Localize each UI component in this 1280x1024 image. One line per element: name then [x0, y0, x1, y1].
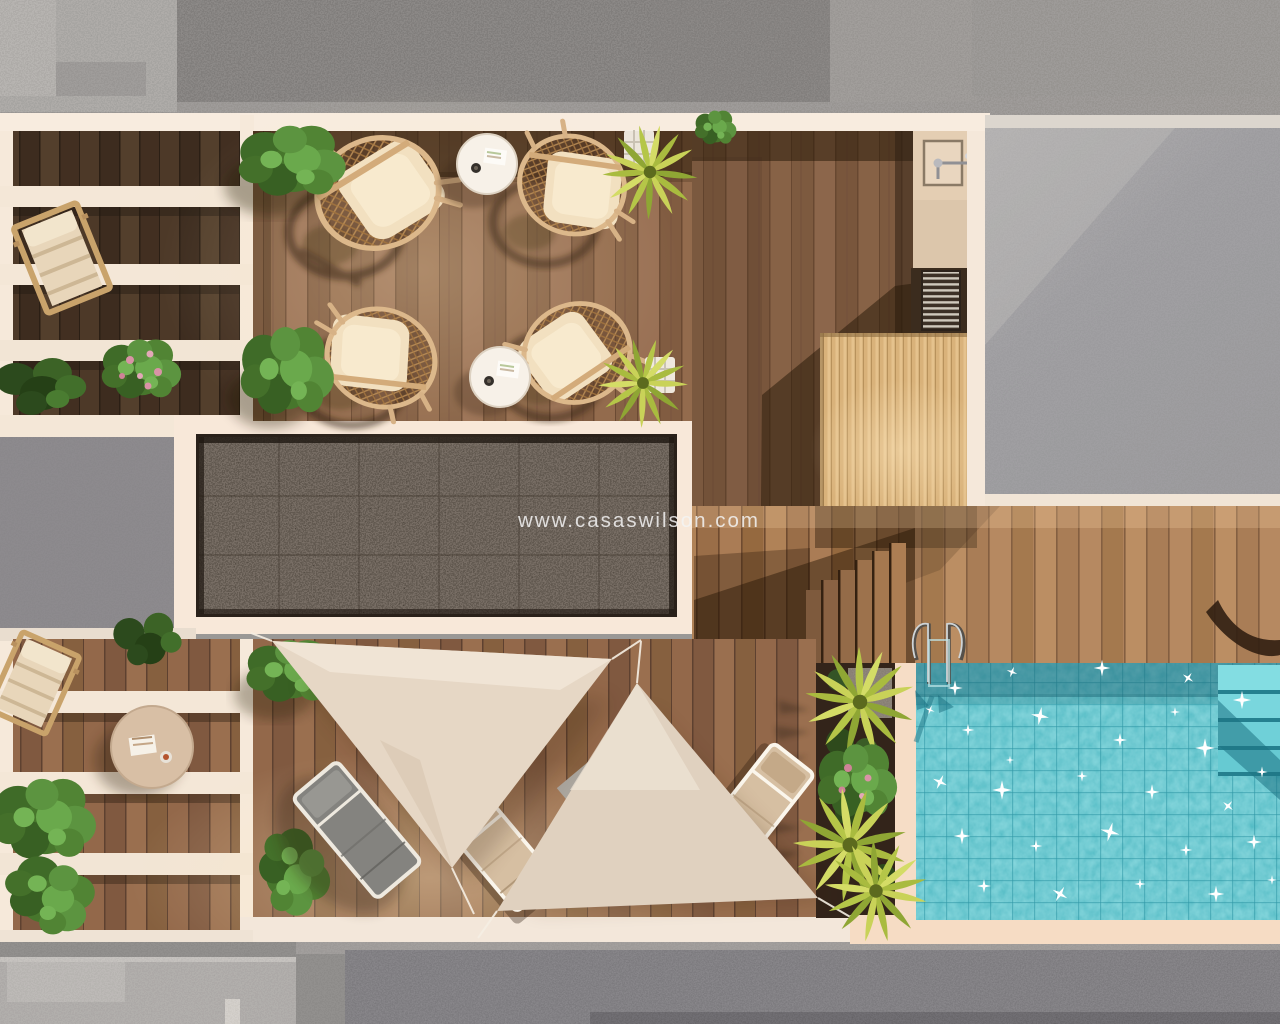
svg-text:www.casaswilson.com: www.casaswilson.com [517, 509, 759, 532]
